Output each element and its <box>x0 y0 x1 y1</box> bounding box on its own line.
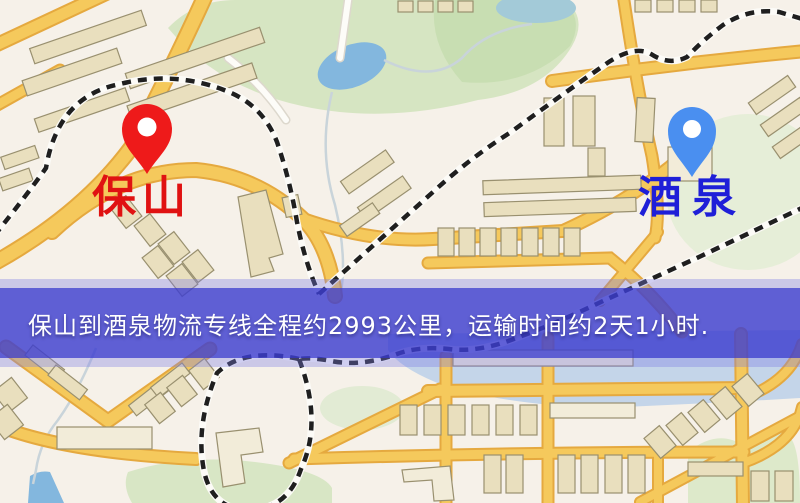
route-info-banner: 保山到酒泉物流专线全程约2993公里，运输时间约2天1小时. <box>0 288 800 358</box>
route-info-text: 保山到酒泉物流专线全程约2993公里，运输时间约2天1小时. <box>28 306 709 341</box>
map-view: 保山 酒泉 保山到酒泉物流专线全程约2993公里，运输时间约2天1小时. <box>0 0 800 503</box>
map-background <box>0 0 800 503</box>
